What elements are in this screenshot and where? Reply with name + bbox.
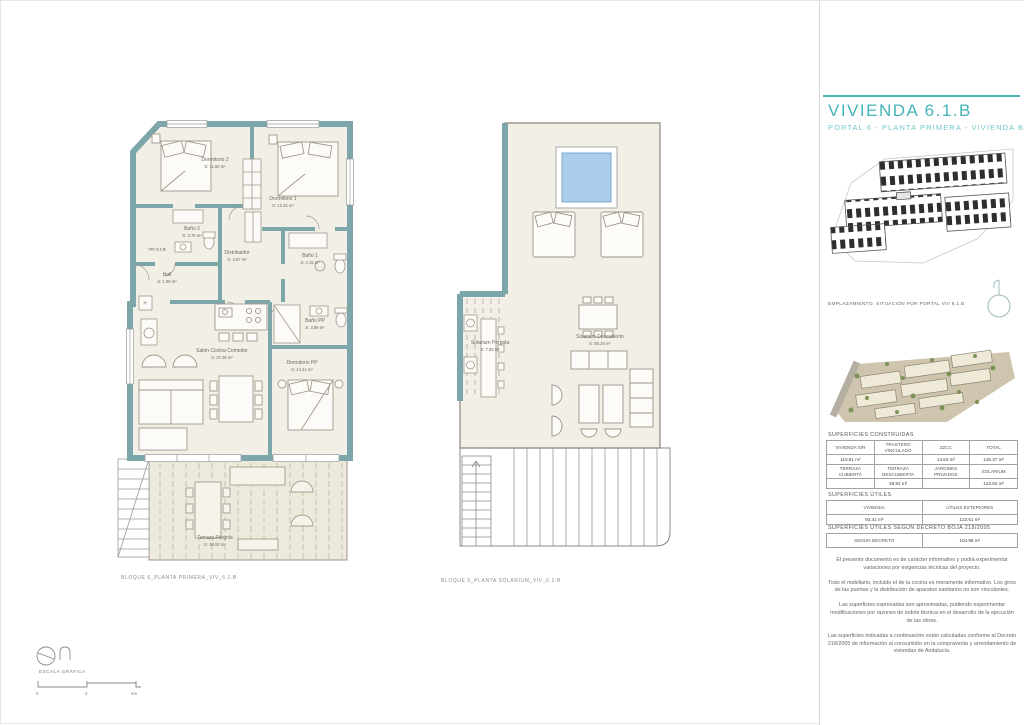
disclaimers: El presente documento es de carácter inf… [827, 557, 1017, 663]
bed-dormitorio-pp [278, 380, 343, 430]
room-label-dormitorio-1: Dormitorio 1 S: 12.34 m² [269, 196, 296, 208]
siteplan-drawing [827, 141, 1017, 279]
constructed-areas-table-2: TERRAZA CUBIERTA TERRAZA DESCUBIERTA JAR… [826, 464, 1018, 489]
floor-plan-first-svg [115, 114, 383, 566]
disclaimer-paragraph: El presente documento es de carácter inf… [827, 557, 1017, 573]
constructed-areas-table-1: VIVIENDA S/R TRASTERO VINCULADO ZZCC TOT… [826, 440, 1018, 465]
siteplan-caption: EMPLAZAMIENTO. SITUACIÓN POR PORTAL VIV … [828, 302, 978, 307]
roof-stairs [462, 456, 491, 546]
disclaimer-paragraph: Todo el mobiliario, incluido el de la co… [827, 580, 1017, 596]
panel-north-icon [982, 276, 1016, 320]
disclaimer-paragraph: Las superficies indicadas a continuación… [827, 633, 1017, 656]
table-header-cell: ÚTILES EXTERIORES [922, 501, 1018, 515]
accent-rule [823, 95, 1020, 97]
shaft-label: H [143, 301, 146, 306]
scale-tick-4: 4m [131, 691, 137, 696]
table-value-cell: 13.63 m² [922, 455, 970, 465]
scale-bar [35, 677, 150, 691]
decree-areas-title: SUPERFICIES ÚTILES SEGÚN DECRETO BOJA 21… [828, 525, 990, 531]
room-label-terraza-pergola: Terraza Pérgola S: 38.92 m² [197, 535, 232, 547]
unit-tag: VIV. 6.1.B [148, 247, 165, 252]
plan-solarium-caption: BLOQUE 6_PLANTA SOLARIUM_VIV_6.1.B [441, 578, 561, 584]
table-value-cell [874, 455, 922, 465]
constructed-areas-title: SUPERFICIES CONSTRUIDAS [828, 432, 914, 438]
room-label-solarium-descubierto: Solarium Descubierto S: 86.25 m² [576, 334, 624, 346]
table-value-cell: 93.41 m² [827, 515, 923, 525]
room-label-bano-2: Baño 2 S: 3.76 m² [182, 226, 201, 238]
table-header-cell: TERRAZA CUBIERTA [827, 465, 875, 479]
table-value-cell: 110.61 m² [827, 455, 875, 465]
north-arrow-icon [29, 641, 89, 669]
wardrobe [243, 159, 261, 242]
table-header-cell: ZZCC [922, 441, 970, 455]
info-panel: VIVIENDA 6.1.B PORTAL 6 - PLANTA PRIMERA… [819, 1, 1024, 725]
table-value-cell [827, 479, 875, 489]
outdoor-dining [579, 297, 617, 337]
table-value-cell [922, 479, 970, 489]
table-header-cell: JARDINES PRIVADOS [922, 465, 970, 479]
scale-tick-2: 2 [85, 691, 87, 696]
aerial-render [827, 346, 1017, 426]
table-header-cell: VIVIENDA [827, 501, 923, 515]
room-label-bano-1: Baño 1 S: 4.15 m² [300, 253, 319, 265]
room-label-hall: Hall S: 1.99 m² [157, 272, 176, 284]
bed-dormitorio-1 [269, 135, 338, 196]
pool [556, 147, 617, 208]
useful-areas-table: VIVIENDA ÚTILES EXTERIORES 93.41 m² 123.… [826, 500, 1018, 525]
table-header-cell: TOTAL [970, 441, 1018, 455]
plan-first-caption: BLOQUE 6_PLANTA PRIMERA_VIV_6.1.B [121, 575, 237, 581]
table-header-cell: VIVIENDA S/R [827, 441, 875, 455]
table-value-cell: 38.92 m² [874, 479, 922, 489]
table-value-cell: 122.82 m² [970, 479, 1018, 489]
room-label-solarium-pergola: Solarium Pérgola S: 7.93 m² [471, 340, 509, 352]
room-label-bano-pp: Baño PP S: 3.99 m² [305, 318, 325, 330]
table-value-cell: 125.37 m² [970, 455, 1018, 465]
room-label-dormitorio-2: Dormitorio 2 S: 11.60 m² [201, 157, 228, 169]
table-value-cell: 104.95 m² [922, 534, 1018, 548]
scale-label: ESCALA GRÁFICA [39, 669, 86, 674]
page-title: VIVIENDA 6.1.B [828, 101, 972, 121]
table-header-cell: TERRAZA DESCUBIERTA [874, 465, 922, 479]
table-header-cell: SEGÚN DECRETO [827, 534, 923, 548]
decree-areas-table: SEGÚN DECRETO 104.95 m² [826, 533, 1018, 548]
stairwell [118, 459, 149, 557]
floor-plan-first: Dormitorio 2 S: 11.60 m² Dormitorio 1 S:… [115, 114, 383, 566]
page-subtitle: PORTAL 6 - PLANTA PRIMERA - VIVIENDA B [828, 123, 1024, 132]
table-header-cell: SOLARIUM [970, 465, 1018, 479]
drawing-sheet: Dormitorio 2 S: 11.60 m² Dormitorio 1 S:… [0, 0, 1024, 724]
floor-plan-solarium: Solarium Descubierto S: 86.25 m² Solariu… [443, 109, 683, 579]
disclaimer-paragraph: Las superficies expresadas son aproximad… [827, 602, 1017, 625]
scale-tick-0: 0 [36, 691, 38, 696]
useful-areas-title: SUPERFICIES ÚTILES [828, 492, 892, 498]
room-label-salon: Salón Cocina Comedor S: 37.36 m² [196, 348, 248, 360]
table-header-cell: TRASTERO VINCULADO [874, 441, 922, 455]
room-label-distribuidor: Distribuidor S: 3.97 m² [224, 250, 249, 262]
table-value-cell: 123.61 m² [922, 515, 1018, 525]
room-label-dormitorio-pp: Dormitorio PP S: 14.41 m² [286, 360, 317, 372]
